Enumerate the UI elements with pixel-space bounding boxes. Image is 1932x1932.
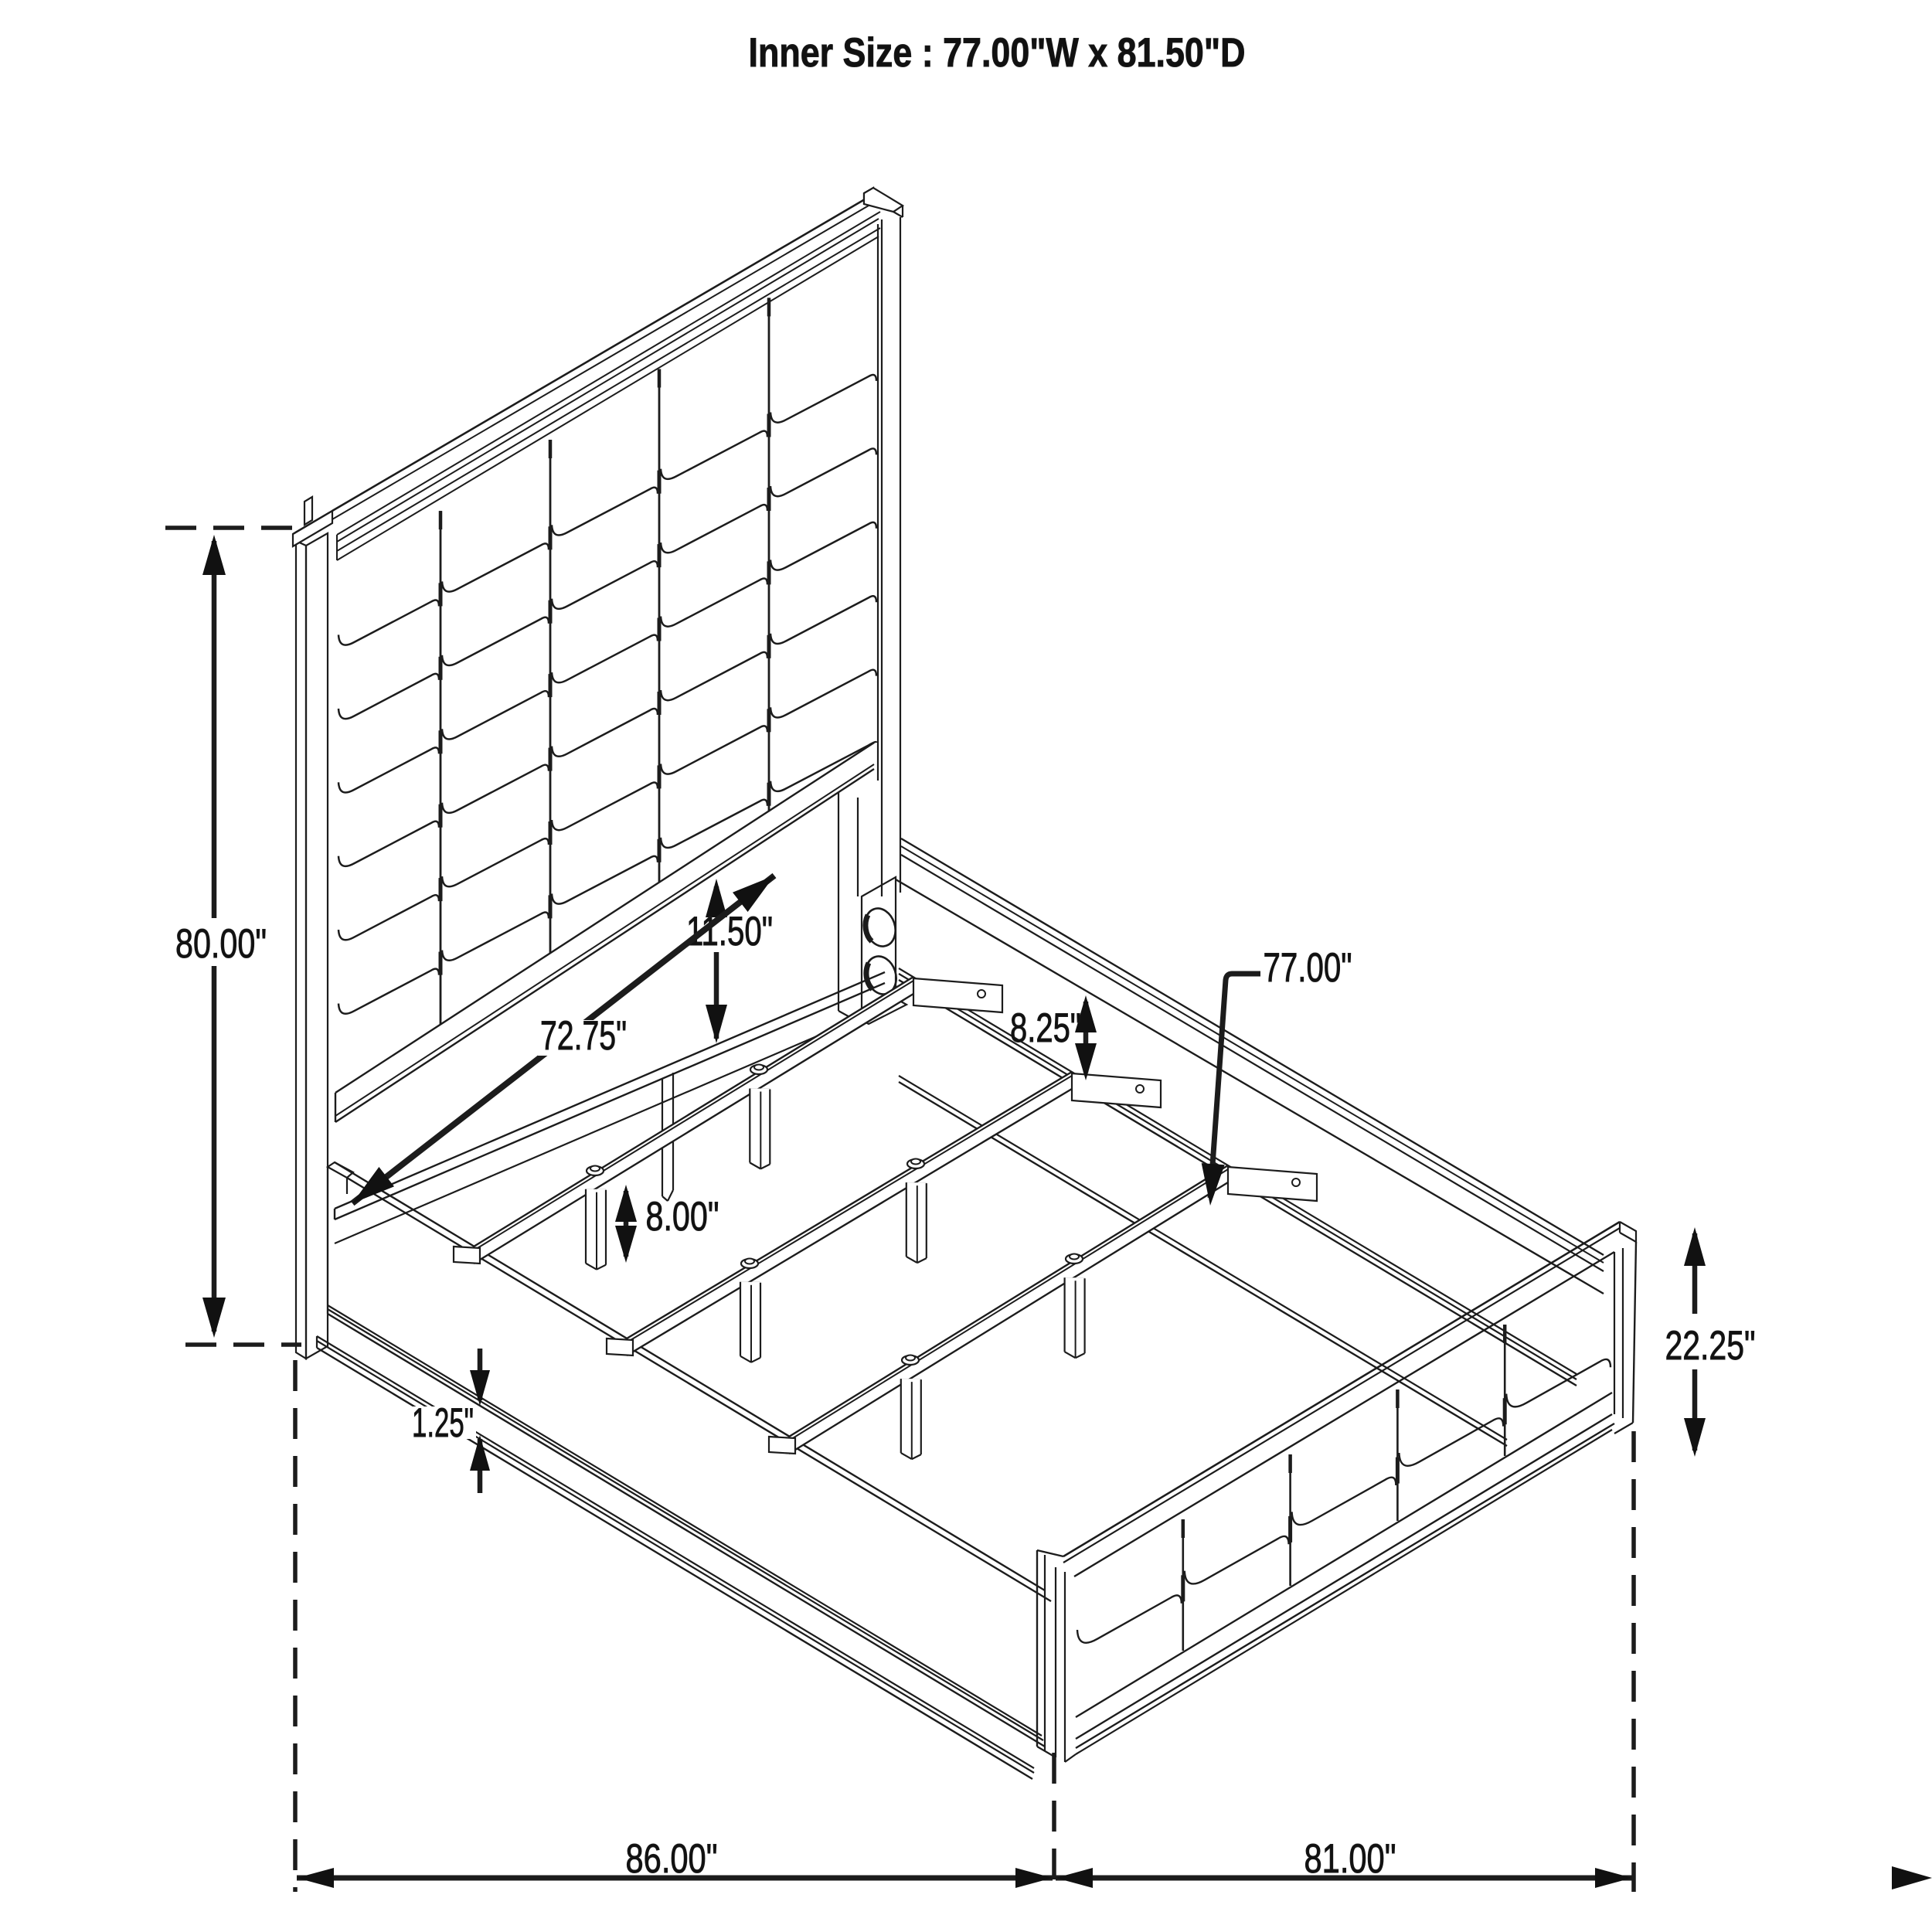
svg-text:1.25": 1.25" bbox=[412, 1400, 474, 1446]
svg-text:22.25": 22.25" bbox=[1665, 1323, 1756, 1369]
svg-text:77.00": 77.00" bbox=[1264, 945, 1352, 991]
svg-text:8.00": 8.00" bbox=[646, 1194, 719, 1240]
svg-text:72.75": 72.75" bbox=[540, 1013, 627, 1059]
svg-text:86.00": 86.00" bbox=[626, 1836, 718, 1882]
svg-text:81.00": 81.00" bbox=[1304, 1836, 1396, 1882]
svg-text:8.25": 8.25" bbox=[1010, 1005, 1081, 1051]
svg-text:Inner Size : 77.00"W x 81.50"D: Inner Size : 77.00"W x 81.50"D bbox=[749, 30, 1246, 76]
svg-text:80.00": 80.00" bbox=[175, 921, 267, 967]
